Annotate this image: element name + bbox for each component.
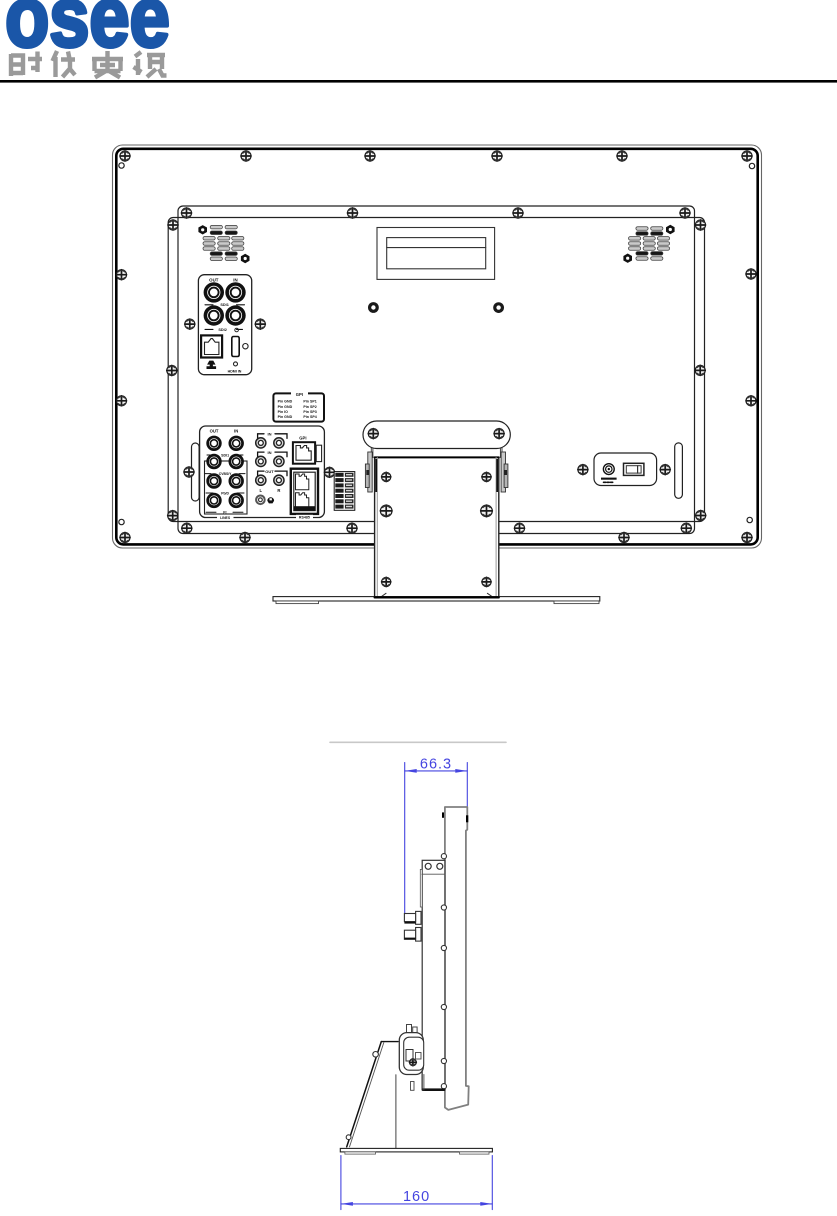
svg-text:Pin IO: Pin IO (278, 410, 289, 414)
svg-text:R: R (277, 488, 280, 493)
svg-text:Pin GND: Pin GND (278, 415, 293, 419)
svg-text:160: 160 (403, 1189, 430, 1205)
svg-text:Pin SP1: Pin SP1 (303, 400, 316, 404)
svg-text:L: L (260, 488, 263, 493)
svg-text:GPI: GPI (296, 392, 303, 397)
svg-text:GPI: GPI (299, 436, 306, 441)
svg-text:osee: osee (5, 0, 170, 64)
svg-text:Pin SP2: Pin SP2 (303, 405, 316, 409)
svg-text:OUT: OUT (210, 429, 219, 434)
svg-text:Pin SP4: Pin SP4 (303, 415, 316, 419)
svg-text:HDMI IN: HDMI IN (228, 370, 242, 374)
svg-text:IN: IN (234, 429, 238, 434)
svg-text:IN: IN (268, 450, 272, 455)
svg-text:OUT: OUT (265, 469, 274, 474)
svg-text:SDI1: SDI1 (220, 303, 228, 307)
svg-text:IN: IN (233, 277, 237, 282)
svg-text:IN: IN (268, 432, 272, 437)
svg-text:SDI1: SDI1 (221, 453, 229, 457)
svg-text:OUT: OUT (209, 277, 219, 282)
svg-text:Pin GND: Pin GND (278, 400, 293, 404)
svg-text:LINES: LINES (220, 516, 231, 520)
svg-text:Pin SP3: Pin SP3 (303, 410, 316, 414)
svg-text:Pb/D: Pb/D (221, 491, 229, 495)
svg-text:RS485: RS485 (299, 515, 310, 519)
svg-text:CVBS/Y: CVBS/Y (219, 472, 232, 476)
svg-text:Pin GND: Pin GND (278, 405, 293, 409)
svg-text:SDI2: SDI2 (218, 328, 226, 332)
svg-text:66.3: 66.3 (420, 756, 452, 772)
